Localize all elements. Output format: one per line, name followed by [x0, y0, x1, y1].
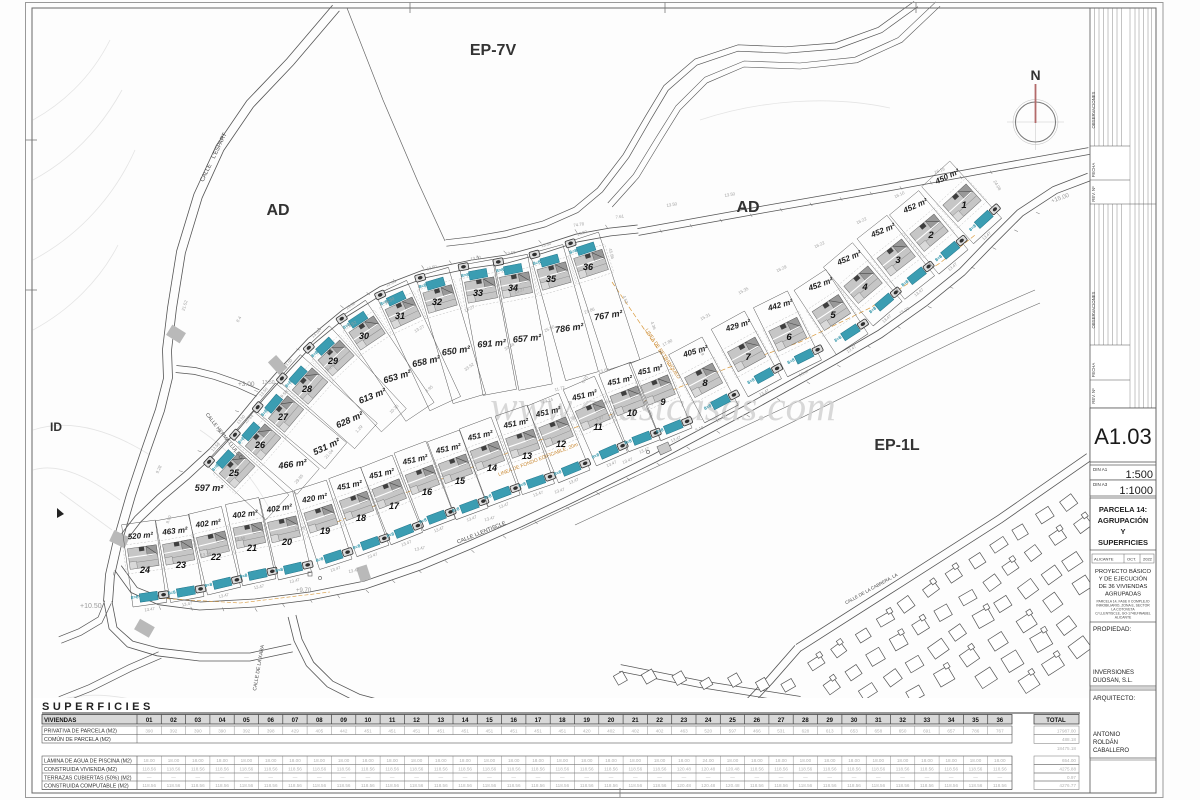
svg-text:118.56: 118.56: [215, 767, 229, 772]
svg-text:—: —: [730, 775, 735, 780]
svg-text:30: 30: [851, 718, 858, 724]
svg-text:118.56: 118.56: [142, 767, 156, 772]
svg-text:EP-1L: EP-1L: [874, 437, 920, 454]
svg-text:11: 11: [389, 718, 396, 724]
svg-text:118.56: 118.56: [458, 767, 472, 772]
svg-text:17987.00: 17987.00: [1057, 728, 1077, 733]
svg-text:EP-7V: EP-7V: [470, 42, 517, 59]
svg-text:120.48: 120.48: [701, 767, 715, 772]
svg-text:+10.50: +10.50: [80, 603, 102, 610]
svg-text:—: —: [998, 775, 1003, 780]
svg-text:118.56: 118.56: [604, 783, 618, 788]
svg-text:INVERSIONES: INVERSIONES: [1093, 670, 1134, 676]
svg-text:657: 657: [947, 728, 955, 733]
svg-text:—: —: [414, 775, 419, 780]
svg-text:34: 34: [948, 718, 955, 724]
svg-text:CABALLERO: CABALLERO: [1093, 748, 1129, 754]
svg-text:118.56: 118.56: [458, 783, 472, 788]
svg-text:16: 16: [510, 718, 517, 724]
svg-text:390: 390: [218, 728, 226, 733]
svg-text:451: 451: [558, 728, 566, 733]
svg-text:09: 09: [340, 718, 347, 724]
svg-text:18.00: 18.00: [970, 758, 982, 763]
svg-text:—: —: [657, 775, 662, 780]
svg-text:FECHA: FECHA: [1091, 363, 1096, 378]
svg-text:118.56: 118.56: [434, 783, 448, 788]
svg-text:6: 6: [786, 332, 792, 343]
svg-text:120.48: 120.48: [677, 783, 691, 788]
svg-text:35: 35: [546, 274, 557, 284]
svg-text:SUPERFICIES: SUPERFICIES: [1098, 538, 1148, 547]
svg-text:13: 13: [437, 718, 444, 724]
svg-text:24: 24: [705, 718, 712, 724]
svg-text:35: 35: [972, 718, 979, 724]
svg-text:118.56: 118.56: [410, 783, 424, 788]
svg-text:18.00: 18.00: [435, 758, 447, 763]
svg-text:18.00: 18.00: [289, 758, 301, 763]
svg-text:—: —: [852, 775, 857, 780]
svg-text:613: 613: [826, 728, 834, 733]
svg-text:21: 21: [632, 718, 639, 724]
svg-text:691: 691: [923, 728, 931, 733]
svg-text:AGRUPADAS: AGRUPADAS: [1105, 592, 1141, 598]
svg-text:A1.03: A1.03: [1094, 424, 1152, 449]
svg-text:—: —: [463, 775, 468, 780]
svg-text:118.56: 118.56: [774, 767, 788, 772]
svg-text:18.00: 18.00: [508, 758, 520, 763]
svg-text:429: 429: [291, 728, 299, 733]
svg-text:1: 1: [961, 200, 966, 211]
svg-text:118.56: 118.56: [434, 767, 448, 772]
svg-text:451: 451: [388, 728, 396, 733]
svg-text:18.00: 18.00: [192, 758, 204, 763]
svg-text:2022: 2022: [1143, 557, 1153, 562]
svg-text:786: 786: [972, 728, 980, 733]
svg-text:20: 20: [608, 718, 615, 724]
svg-text:118.56: 118.56: [774, 783, 788, 788]
svg-text:18.00: 18.00: [241, 758, 253, 763]
svg-text:118.56: 118.56: [361, 767, 375, 772]
svg-text:628: 628: [802, 728, 810, 733]
svg-text:118.56: 118.56: [385, 767, 399, 772]
svg-text:118.56: 118.56: [215, 783, 229, 788]
svg-text:18: 18: [356, 513, 366, 523]
svg-text:442: 442: [340, 728, 348, 733]
svg-text:18.00: 18.00: [873, 758, 885, 763]
svg-text:392: 392: [243, 728, 251, 733]
svg-text:118.56: 118.56: [555, 783, 569, 788]
svg-text:ID: ID: [50, 420, 62, 434]
svg-text:118.56: 118.56: [531, 783, 545, 788]
svg-text:8: 8: [702, 378, 708, 389]
svg-text:658: 658: [874, 728, 882, 733]
svg-text:19: 19: [320, 526, 330, 536]
svg-text:N: N: [1030, 67, 1040, 83]
svg-text:TOTAL: TOTAL: [1046, 718, 1066, 724]
svg-text:PROPIEDAD:: PROPIEDAD:: [1093, 626, 1131, 633]
svg-text:5: 5: [830, 310, 836, 321]
svg-text:31: 31: [395, 311, 405, 321]
svg-text:—: —: [341, 775, 346, 780]
svg-text:18.00: 18.00: [727, 758, 739, 763]
svg-text:36: 36: [583, 262, 594, 272]
svg-text:REV. Nº: REV. Nº: [1091, 186, 1096, 202]
svg-text:29: 29: [826, 718, 833, 724]
svg-text:28: 28: [802, 718, 809, 724]
svg-text:23: 23: [681, 718, 688, 724]
svg-text:118.56: 118.56: [337, 783, 351, 788]
svg-text:11: 11: [593, 422, 602, 432]
svg-text:0.97: 0.97: [1067, 775, 1076, 780]
svg-text:ANTONIO: ANTONIO: [1093, 732, 1121, 738]
svg-text:20: 20: [281, 537, 292, 547]
svg-text:1:500: 1:500: [1125, 469, 1153, 481]
svg-text:118.56: 118.56: [483, 767, 497, 772]
svg-text:118.56: 118.56: [969, 783, 983, 788]
svg-text:+9.70: +9.70: [296, 588, 312, 594]
svg-text:33: 33: [924, 718, 931, 724]
svg-text:18.00: 18.00: [557, 758, 569, 763]
svg-text:118.56: 118.56: [288, 767, 302, 772]
svg-text:531: 531: [777, 728, 785, 733]
svg-text:118.56: 118.56: [531, 767, 545, 772]
svg-text:—: —: [584, 775, 589, 780]
svg-text:CONSTRUIDA VIVIENDA (M2): CONSTRUIDA VIVIENDA (M2): [44, 767, 117, 773]
svg-text:118.56: 118.56: [507, 767, 521, 772]
svg-text:767: 767: [996, 728, 1004, 733]
svg-text:AGRUPACIÓN: AGRUPACIÓN: [1098, 516, 1149, 525]
svg-text:118.56: 118.56: [264, 783, 278, 788]
svg-text:—: —: [973, 775, 978, 780]
svg-text:18.00: 18.00: [265, 758, 277, 763]
svg-text:118.56: 118.56: [240, 783, 254, 788]
svg-text:04: 04: [219, 718, 226, 724]
svg-text:DIN A1: DIN A1: [1093, 467, 1108, 472]
svg-text:TERRAZAS CUBIERTAS (50%) (M2): TERRAZAS CUBIERTAS (50%) (M2): [44, 775, 132, 781]
svg-text:118.56: 118.56: [896, 767, 910, 772]
svg-text:03: 03: [194, 718, 201, 724]
svg-text:451: 451: [413, 728, 421, 733]
svg-text:118.56: 118.56: [191, 783, 205, 788]
svg-text:118.56: 118.56: [799, 767, 813, 772]
svg-text:15: 15: [486, 718, 493, 724]
svg-text:07: 07: [292, 718, 299, 724]
svg-text:118.56: 118.56: [288, 783, 302, 788]
svg-text:18.00: 18.00: [386, 758, 398, 763]
svg-text:4275.88: 4275.88: [1059, 767, 1076, 772]
svg-text:—: —: [779, 775, 784, 780]
svg-text:18.00: 18.00: [605, 758, 617, 763]
svg-text:118.56: 118.56: [628, 767, 642, 772]
svg-text:—: —: [268, 775, 273, 780]
svg-text:402: 402: [656, 728, 664, 733]
svg-text:17: 17: [535, 718, 542, 724]
svg-text:—: —: [293, 775, 298, 780]
svg-text:18.00: 18.00: [362, 758, 374, 763]
svg-text:451: 451: [364, 728, 372, 733]
svg-text:OBSERVACIONES: OBSERVACIONES: [1091, 91, 1096, 128]
svg-text:21: 21: [246, 543, 257, 553]
svg-text:06: 06: [267, 718, 274, 724]
svg-text:18.00: 18.00: [921, 758, 933, 763]
svg-text:18.00: 18.00: [945, 758, 957, 763]
svg-text:402: 402: [631, 728, 639, 733]
svg-text:118.56: 118.56: [920, 767, 934, 772]
svg-text:653: 653: [850, 728, 858, 733]
svg-text:—: —: [949, 775, 954, 780]
svg-text:AD: AD: [266, 202, 289, 219]
svg-text:118.56: 118.56: [337, 767, 351, 772]
svg-text:SUPERFICIES: SUPERFICIES: [42, 701, 154, 713]
svg-text:—: —: [244, 775, 249, 780]
svg-text:118.56: 118.56: [385, 783, 399, 788]
svg-text:390: 390: [145, 728, 153, 733]
svg-text:451: 451: [534, 728, 542, 733]
svg-text:118.56: 118.56: [653, 767, 667, 772]
svg-text:14: 14: [487, 463, 497, 473]
svg-text:118.56: 118.56: [240, 767, 254, 772]
svg-text:—: —: [390, 775, 395, 780]
svg-text:118.56: 118.56: [993, 767, 1007, 772]
svg-text:18.00: 18.00: [824, 758, 836, 763]
svg-text:OBSERVACIONES: OBSERVACIONES: [1091, 291, 1096, 328]
svg-text:118.56: 118.56: [142, 783, 156, 788]
svg-text:27: 27: [277, 412, 289, 422]
svg-text:118.56: 118.56: [361, 783, 375, 788]
svg-text:24.00: 24.00: [702, 758, 714, 763]
svg-text:118.56: 118.56: [847, 783, 861, 788]
svg-text:4: 4: [861, 282, 868, 293]
svg-text:18475.18: 18475.18: [1057, 746, 1077, 751]
svg-text:18.00: 18.00: [532, 758, 544, 763]
svg-text:—: —: [560, 775, 565, 780]
svg-text:—: —: [609, 775, 614, 780]
svg-text:118.56: 118.56: [871, 767, 885, 772]
svg-text:02: 02: [170, 718, 177, 724]
svg-text:18.00: 18.00: [581, 758, 593, 763]
svg-text:118.56: 118.56: [750, 767, 764, 772]
svg-text:28: 28: [301, 384, 312, 394]
svg-text:26: 26: [254, 440, 266, 450]
svg-text:118.56: 118.56: [944, 783, 958, 788]
svg-text:ALICANTE: ALICANTE: [1115, 616, 1132, 620]
svg-text:—: —: [706, 775, 711, 780]
svg-text:26: 26: [753, 718, 760, 724]
svg-text:18.00: 18.00: [143, 758, 155, 763]
svg-text:597: 597: [729, 728, 737, 733]
svg-text:18.00: 18.00: [994, 758, 1006, 763]
svg-text:118.56: 118.56: [555, 767, 569, 772]
svg-text:118.56: 118.56: [823, 767, 837, 772]
svg-text:18: 18: [559, 718, 566, 724]
svg-text:25: 25: [729, 718, 736, 724]
svg-text:18.00: 18.00: [216, 758, 228, 763]
svg-text:Y DE EJECUCIÓN: Y DE EJECUCIÓN: [1099, 576, 1148, 583]
svg-text:118.56: 118.56: [312, 783, 326, 788]
svg-text:7: 7: [745, 352, 751, 363]
svg-text:ARQUITECTO:: ARQUITECTO:: [1093, 695, 1135, 702]
svg-text:01: 01: [146, 718, 153, 724]
svg-text:118.56: 118.56: [604, 767, 618, 772]
svg-text:COMÚN DE PARCELA (M2): COMÚN DE PARCELA (M2): [44, 736, 111, 743]
svg-text:451: 451: [437, 728, 445, 733]
svg-text:—: —: [487, 775, 492, 780]
svg-text:OCT.: OCT.: [1127, 557, 1136, 562]
svg-text:22: 22: [210, 552, 221, 562]
svg-text:LÁMINA DE AGUA DE PISCINA (M2): LÁMINA DE AGUA DE PISCINA (M2): [44, 757, 132, 764]
svg-text:118.56: 118.56: [580, 783, 594, 788]
svg-text:9: 9: [660, 397, 665, 407]
svg-text:REV. Nº: REV. Nº: [1091, 388, 1096, 404]
svg-text:PRIVATIVA DE PARCELA (M2): PRIVATIVA DE PARCELA (M2): [44, 729, 117, 735]
svg-text:—: —: [317, 775, 322, 780]
svg-text:—: —: [439, 775, 444, 780]
svg-text:23: 23: [175, 560, 186, 570]
svg-text:466: 466: [753, 728, 761, 733]
svg-text:390: 390: [194, 728, 202, 733]
svg-text:18.00: 18.00: [678, 758, 690, 763]
svg-text:120.48: 120.48: [701, 783, 715, 788]
svg-text:13: 13: [522, 451, 532, 461]
svg-text:33: 33: [473, 288, 483, 298]
svg-text:118.56: 118.56: [799, 783, 813, 788]
svg-text:118.56: 118.56: [191, 767, 205, 772]
svg-text:451: 451: [461, 728, 469, 733]
svg-text:+3.00: +3.00: [238, 381, 255, 388]
svg-text:30: 30: [359, 331, 369, 341]
svg-text:—: —: [827, 775, 832, 780]
svg-text:12: 12: [556, 439, 566, 449]
svg-text:18.00: 18.00: [897, 758, 909, 763]
svg-text:—: —: [682, 775, 687, 780]
svg-text:120.48: 120.48: [725, 767, 739, 772]
svg-text:118.56: 118.56: [167, 767, 181, 772]
svg-text:—: —: [511, 775, 516, 780]
svg-text:118.56: 118.56: [750, 783, 764, 788]
svg-text:2: 2: [927, 230, 934, 241]
svg-text:488.18: 488.18: [1062, 737, 1076, 742]
svg-text:13.50: 13.50: [262, 380, 275, 386]
svg-text:18.00: 18.00: [848, 758, 860, 763]
svg-text:—: —: [633, 775, 638, 780]
svg-text:118.56: 118.56: [167, 783, 181, 788]
svg-text:—: —: [876, 775, 881, 780]
svg-text:18.00: 18.00: [411, 758, 423, 763]
svg-text:118.56: 118.56: [507, 783, 521, 788]
svg-text:DIN A3: DIN A3: [1093, 482, 1108, 487]
svg-text:420: 420: [583, 728, 591, 733]
svg-text:15: 15: [455, 476, 466, 486]
svg-text:18.00: 18.00: [168, 758, 180, 763]
svg-text:118.56: 118.56: [483, 783, 497, 788]
svg-text:118.56: 118.56: [410, 767, 424, 772]
svg-text:1:1000: 1:1000: [1119, 485, 1153, 497]
svg-text:118.56: 118.56: [823, 783, 837, 788]
svg-text:AD: AD: [736, 199, 759, 216]
svg-text:118.56: 118.56: [628, 783, 642, 788]
svg-text:18.00: 18.00: [484, 758, 496, 763]
svg-text:—: —: [925, 775, 930, 780]
svg-text:118.56: 118.56: [993, 783, 1007, 788]
svg-text:3: 3: [895, 255, 901, 266]
svg-text:463: 463: [680, 728, 688, 733]
svg-text:120.48: 120.48: [677, 767, 691, 772]
svg-text:520: 520: [704, 728, 712, 733]
svg-text:22: 22: [656, 718, 663, 724]
svg-text:DE 36 VIVIENDAS: DE 36 VIVIENDAS: [1099, 584, 1148, 590]
svg-text:29: 29: [327, 356, 338, 366]
svg-text:—: —: [755, 775, 760, 780]
svg-text:118.56: 118.56: [871, 783, 885, 788]
svg-text:18.00: 18.00: [775, 758, 787, 763]
svg-text:18.00: 18.00: [751, 758, 763, 763]
svg-text:CONSTRUIDA COMPUTABLE (M2): CONSTRUIDA COMPUTABLE (M2): [44, 783, 129, 789]
svg-text:18.00: 18.00: [459, 758, 471, 763]
svg-text:—: —: [196, 775, 201, 780]
svg-text:08: 08: [316, 718, 323, 724]
svg-text:402: 402: [607, 728, 615, 733]
svg-text:118.56: 118.56: [944, 767, 958, 772]
svg-text:4276.77: 4276.77: [1059, 783, 1076, 788]
svg-text:—: —: [900, 775, 905, 780]
svg-text:32: 32: [432, 297, 442, 307]
svg-text:36: 36: [996, 718, 1003, 724]
svg-text:118.56: 118.56: [580, 767, 594, 772]
svg-text:—: —: [803, 775, 808, 780]
svg-text:19: 19: [583, 718, 590, 724]
svg-text:392: 392: [170, 728, 178, 733]
svg-text:—: —: [366, 775, 371, 780]
svg-text:18.00: 18.00: [630, 758, 642, 763]
svg-text:597 m²: 597 m²: [195, 483, 225, 493]
svg-text:05: 05: [243, 718, 250, 724]
svg-text:118.56: 118.56: [264, 767, 278, 772]
svg-text:PROYECTO BÁSICO: PROYECTO BÁSICO: [1095, 568, 1151, 575]
svg-text:118.56: 118.56: [920, 783, 934, 788]
svg-text:118.56: 118.56: [969, 767, 983, 772]
svg-text:25: 25: [228, 468, 240, 478]
svg-text:—: —: [147, 775, 152, 780]
svg-text:10: 10: [365, 718, 372, 724]
svg-text:31: 31: [875, 718, 882, 724]
svg-text:405: 405: [315, 728, 323, 733]
svg-text:PARCELA 14:: PARCELA 14:: [1099, 505, 1147, 514]
svg-text:DUOSAN, S.L.: DUOSAN, S.L.: [1093, 678, 1133, 684]
svg-text:654.00: 654.00: [1062, 758, 1076, 763]
svg-text:—: —: [536, 775, 541, 780]
svg-text:120.48: 120.48: [725, 783, 739, 788]
svg-text:118.56: 118.56: [653, 783, 667, 788]
svg-text:12: 12: [413, 718, 420, 724]
svg-text:18.00: 18.00: [314, 758, 326, 763]
svg-text:27: 27: [778, 718, 785, 724]
svg-text:—: —: [220, 775, 225, 780]
svg-text:16: 16: [422, 487, 433, 497]
svg-text:—: —: [171, 775, 176, 780]
svg-text:17: 17: [389, 501, 400, 511]
svg-text:ALICANTE: ALICANTE: [1094, 557, 1114, 562]
svg-text:451: 451: [486, 728, 494, 733]
svg-text:18.00: 18.00: [654, 758, 666, 763]
svg-text:14: 14: [462, 718, 469, 724]
svg-text:ROLDÁN: ROLDÁN: [1093, 739, 1118, 746]
svg-text:18.00: 18.00: [800, 758, 812, 763]
svg-text:24: 24: [139, 565, 150, 575]
svg-text:398: 398: [267, 728, 275, 733]
svg-text:118.56: 118.56: [847, 767, 861, 772]
svg-text:118.56: 118.56: [312, 767, 326, 772]
svg-text:118.56: 118.56: [896, 783, 910, 788]
